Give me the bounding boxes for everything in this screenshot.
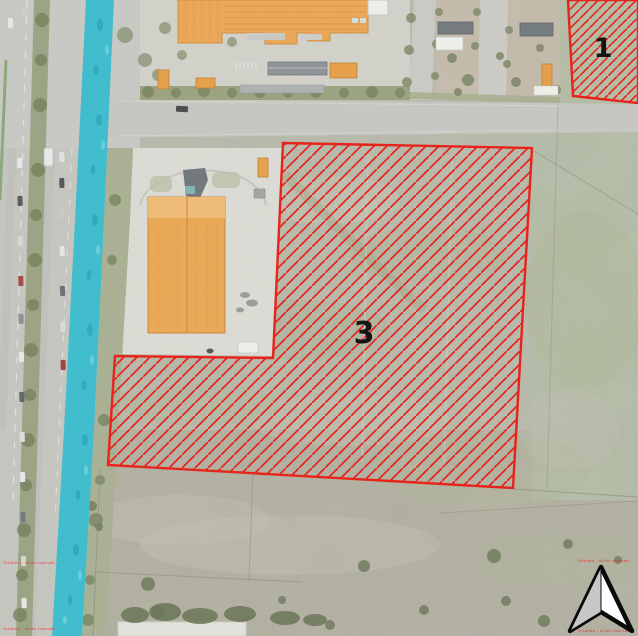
- map-viewport: 3 1 Ortofoto - diritti riservati Ortofot…: [0, 0, 638, 636]
- watermark-text: Ortofoto - diritti riservati: [3, 626, 55, 631]
- watermark-text: Ortofoto - diritti riservati: [578, 628, 630, 633]
- watermark-text: Ortofoto - diritti riservati: [577, 558, 629, 563]
- parcel-3-label: 3: [354, 316, 375, 351]
- watermark-text: Ortofoto - diritti riservati: [3, 560, 55, 565]
- parcel-1-label: 1: [594, 33, 613, 64]
- map-canvas: 3 1 Ortofoto - diritti riservati Ortofot…: [0, 0, 638, 636]
